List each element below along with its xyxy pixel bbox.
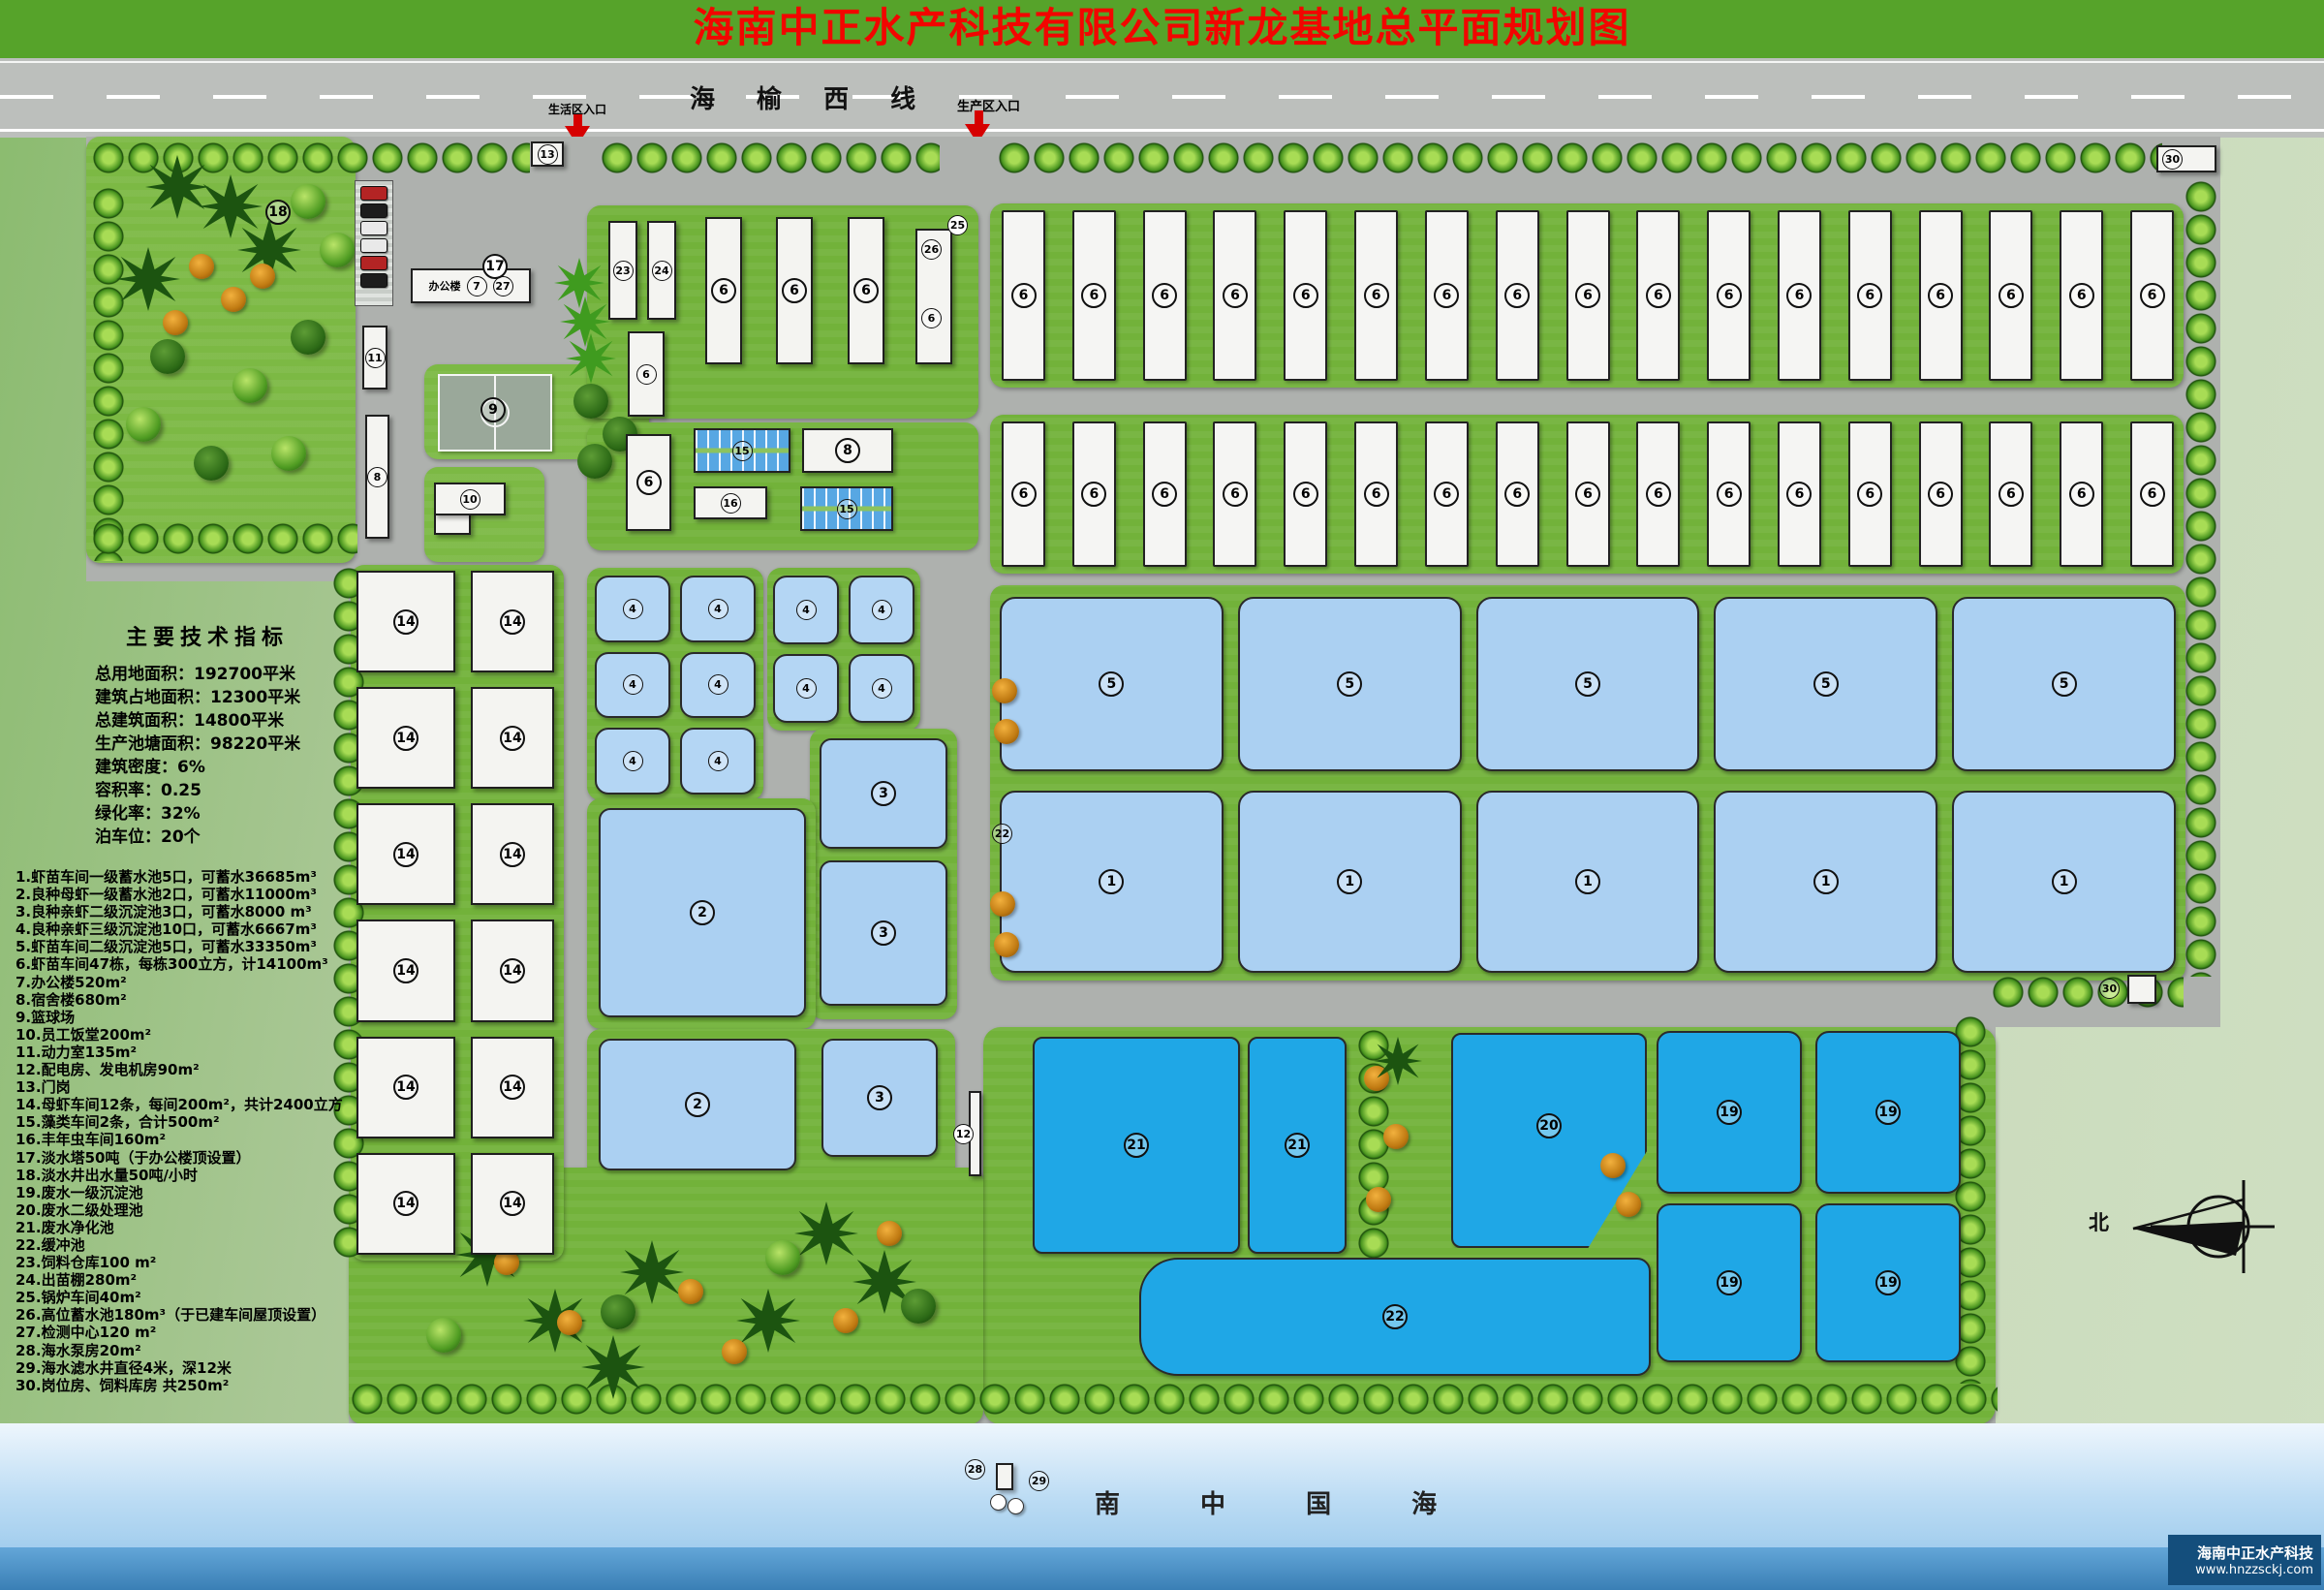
reservoir-pond-1: 1 xyxy=(1000,791,1224,973)
marker-pond19: 19 xyxy=(1875,1270,1901,1295)
unit-marker: 4 xyxy=(623,599,643,619)
road-dashed-line xyxy=(0,95,2324,99)
mu-shrimp-building: 14 xyxy=(356,1153,455,1255)
orange-shrub-icon xyxy=(992,678,1017,703)
production-entrance-arrow xyxy=(975,110,983,125)
list-item: 1.虾苗车间一级蓄水池5口，可蓄水36685m³ xyxy=(15,868,343,886)
sediment-pond-3: 3 xyxy=(820,860,947,1006)
marker-basketball-court: 9 xyxy=(480,397,506,422)
marker-barn: 6 xyxy=(636,364,657,385)
shrimp-barn: 6 xyxy=(626,434,671,531)
sediment-pond-3: 3 xyxy=(820,738,947,849)
unit-marker: 4 xyxy=(796,678,817,699)
shrimp-barn: 6 xyxy=(2130,210,2174,381)
road-edge-line2 xyxy=(0,129,2324,132)
mu-shrimp-building: 14 xyxy=(471,1037,554,1138)
marker-guard-house: 30 xyxy=(2099,979,2120,999)
canteen-building: 10 xyxy=(434,483,506,515)
hedge-top-mid xyxy=(601,139,940,179)
list-item: 总建筑面积：14800平米 xyxy=(95,709,300,733)
list-item: 23.饲料仓库100 m² xyxy=(15,1254,343,1271)
marker-barn: 6 xyxy=(921,308,942,328)
marker-feed-warehouse: 23 xyxy=(613,261,634,281)
reservoir-pond-5: 5 xyxy=(1000,597,1224,771)
shrimp-barn: 6 xyxy=(1143,421,1187,567)
company-logo-box: 海南中正水产科技 www.hnzzsckj.com xyxy=(2168,1535,2321,1585)
marker-algae-workshop: 15 xyxy=(732,441,753,461)
sediment-pond-4: 4 xyxy=(849,654,914,723)
list-item: 4.良种亲虾三级沉淀池10口，可蓄水6667m³ xyxy=(15,920,343,938)
mu-shrimp-building: 14 xyxy=(356,687,455,789)
unit-marker: 1 xyxy=(1099,869,1124,894)
reservoir-pond-1: 1 xyxy=(1952,791,2176,973)
sediment-pond-19: 19 xyxy=(1657,1203,1802,1362)
gate-house: 13 xyxy=(531,141,564,167)
production-entrance-label: 生产区入口 xyxy=(957,96,1020,114)
unit-marker: 14 xyxy=(393,958,418,983)
shrimp-barn: 6 xyxy=(628,331,665,417)
list-item: 5.虾苗车间二级沉淀池5口，可蓄水33350m³ xyxy=(15,938,343,955)
unit-marker: 6 xyxy=(1575,482,1600,507)
mu-shrimp-building: 14 xyxy=(356,920,455,1021)
algae-workshop: 15 xyxy=(800,486,893,531)
unit-marker: 5 xyxy=(1099,671,1124,697)
list-item: 12.配电房、发电机房90m² xyxy=(15,1061,343,1078)
shrimp-barn: 6 xyxy=(1354,421,1398,567)
list-item: 生产池塘面积：98220平米 xyxy=(95,733,300,756)
marker-pond3: 3 xyxy=(871,781,896,806)
marker-barn: 6 xyxy=(711,278,736,303)
unit-marker: 6 xyxy=(1786,283,1812,308)
unit-marker: 4 xyxy=(623,751,643,771)
list-item: 18.淡水井出水量50吨/小时 xyxy=(15,1167,343,1184)
tree-icon xyxy=(271,436,306,471)
plan-title: 海南中正水产科技有限公司新龙基地总平面规划图 xyxy=(0,0,2324,56)
marker-pond2: 2 xyxy=(685,1092,710,1117)
shrimp-barn: 6 xyxy=(1213,421,1256,567)
compass-north-label: 北 xyxy=(2089,1207,2109,1236)
marker-pond21: 21 xyxy=(1124,1133,1149,1158)
logo-website: www.hnzzsckj.com xyxy=(2195,1563,2313,1577)
office-building: 办公楼 7 27 xyxy=(411,268,531,303)
shrimp-barn: 6 xyxy=(1425,210,1469,381)
orange-shrub-icon xyxy=(557,1310,582,1335)
sediment-pond-4: 4 xyxy=(595,576,670,642)
reservoir-pond-5: 5 xyxy=(1714,597,1937,771)
orange-shrub-icon xyxy=(189,254,214,279)
reservoir-pond-5: 5 xyxy=(1952,597,2176,771)
marker-filter-well: 29 xyxy=(1029,1471,1049,1491)
shrimp-barn: 6 xyxy=(1213,210,1256,381)
marker-pond20: 20 xyxy=(1536,1113,1562,1138)
legend-list: 1.虾苗车间一级蓄水池5口，可蓄水36685m³2.良种母虾一级蓄水池2口，可蓄… xyxy=(15,868,343,1394)
mu-shrimp-building: 14 xyxy=(471,687,554,789)
unit-marker: 1 xyxy=(2052,869,2077,894)
list-item: 容积率：0.25 xyxy=(95,779,300,802)
guard-feed-house: 30 xyxy=(2156,145,2216,172)
unit-marker: 6 xyxy=(1504,482,1530,507)
list-item: 建筑密度：6% xyxy=(95,756,300,779)
shrimp-barn: 6 xyxy=(1848,421,1892,567)
list-item: 3.良种亲虾二级沉淀池3口，可蓄水8000 m³ xyxy=(15,903,343,920)
sediment-pond-4: 4 xyxy=(773,654,839,723)
shrimp-barn: 6 xyxy=(1354,210,1398,381)
unit-marker: 14 xyxy=(393,1075,418,1100)
orange-shrub-icon xyxy=(990,891,1015,917)
orange-shrub-icon xyxy=(1616,1192,1641,1217)
unit-marker: 4 xyxy=(708,674,728,695)
sediment-pond-19: 19 xyxy=(1815,1031,1961,1194)
sediment-pond-19: 19 xyxy=(1815,1203,1961,1362)
unit-marker: 6 xyxy=(1434,283,1459,308)
unit-marker: 1 xyxy=(1575,869,1600,894)
seedling-shed: 24 xyxy=(647,221,676,320)
compass-icon xyxy=(2122,1174,2277,1275)
list-item: 2.良种母虾一级蓄水池2口，可蓄水11000m³ xyxy=(15,886,343,903)
unit-marker: 6 xyxy=(1928,283,1953,308)
list-item: 27.检测中心120 m² xyxy=(15,1324,343,1341)
marker-barn: 6 xyxy=(782,278,807,303)
unit-marker: 6 xyxy=(2140,283,2165,308)
shrimp-barn: 6 xyxy=(1778,210,1821,381)
car-icon xyxy=(360,221,387,235)
pond4-grid-left: 444444 xyxy=(595,576,756,795)
list-item: 建筑占地面积：12300平米 xyxy=(95,686,300,709)
unit-marker: 6 xyxy=(1786,482,1812,507)
tree-icon xyxy=(232,368,267,403)
tree-icon xyxy=(126,407,161,442)
unit-marker: 6 xyxy=(1223,482,1248,507)
marker-algae-workshop: 15 xyxy=(837,499,857,519)
unit-marker: 6 xyxy=(1504,283,1530,308)
shrimp-barn: 6 xyxy=(1848,210,1892,381)
orange-shrub-icon xyxy=(678,1279,703,1304)
sea-pump-house xyxy=(996,1463,1013,1490)
list-item: 总用地面积：192700平米 xyxy=(95,663,300,686)
marker-generator-room: 12 xyxy=(953,1124,974,1144)
buffer-pond-22: 22 xyxy=(1139,1258,1651,1376)
unit-marker: 6 xyxy=(1364,283,1389,308)
marker-gate-house: 13 xyxy=(538,144,558,165)
list-item: 30.岗位房、饲料库房 共250m² xyxy=(15,1377,343,1394)
unit-marker: 6 xyxy=(1999,283,2024,308)
list-item: 泊车位：20个 xyxy=(95,826,300,849)
list-item: 14.母虾车间12条，每间200m²，共计2400立方 xyxy=(15,1096,343,1113)
shrimp-barn: 6 xyxy=(1143,210,1187,381)
unit-marker: 14 xyxy=(500,1191,525,1216)
shrimp-barn: 6 xyxy=(1707,421,1751,567)
list-item: 16.丰年虫车间160m² xyxy=(15,1131,343,1148)
unit-marker: 14 xyxy=(500,842,525,867)
shrimp-barn: 6 xyxy=(1636,210,1680,381)
sediment-pond-4: 4 xyxy=(595,728,670,795)
unit-marker: 4 xyxy=(796,600,817,620)
sediment-pond-4: 4 xyxy=(680,652,756,719)
list-item: 15.藻类车间2条，合计500m² xyxy=(15,1113,343,1131)
power-room: 11 xyxy=(362,326,387,390)
reservoir-pond-5: 5 xyxy=(1238,597,1462,771)
reservoir-pond-1: 1 xyxy=(1714,791,1937,973)
list-item: 22.缓冲池 xyxy=(15,1236,343,1254)
unit-marker: 6 xyxy=(1434,482,1459,507)
list-item: 绿化率：32% xyxy=(95,802,300,826)
unit-marker: 6 xyxy=(2069,283,2094,308)
tree-icon xyxy=(577,444,612,479)
shrimp-barn: 6 xyxy=(1284,421,1327,567)
tree-icon xyxy=(601,1294,635,1329)
feed-warehouse: 23 xyxy=(608,221,637,320)
purification-pond-21: 21 xyxy=(1033,1037,1240,1254)
unit-marker: 6 xyxy=(1081,482,1106,507)
car-icon xyxy=(360,203,387,218)
list-item: 28.海水泵房20m² xyxy=(15,1342,343,1359)
hedge-park-bottom xyxy=(92,519,357,560)
mu-shrimp-building: 14 xyxy=(471,920,554,1021)
office-label: 办公楼 xyxy=(429,278,461,294)
marker-water-tower: 17 xyxy=(482,254,508,279)
orange-shrub-icon xyxy=(877,1221,902,1246)
storage-pond-2: 2 xyxy=(599,1039,796,1170)
shrimp-barn: 6 xyxy=(1566,210,1610,381)
shrimp-barn: 6 xyxy=(2060,210,2103,381)
unit-marker: 6 xyxy=(2140,482,2165,507)
sediment-pond-4: 4 xyxy=(773,576,839,644)
marker-canteen: 10 xyxy=(460,489,480,510)
shrimp-barn: 6 xyxy=(1919,210,1963,381)
list-item: 25.锅炉车间40m² xyxy=(15,1289,343,1306)
tree-icon xyxy=(901,1289,936,1324)
sediment-pond-4: 4 xyxy=(595,652,670,719)
shrimp-barn: 6 xyxy=(1989,210,2032,381)
car-icon xyxy=(360,256,387,270)
list-item: 8.宿舍楼680m² xyxy=(15,991,343,1009)
unit-marker: 5 xyxy=(1575,671,1600,697)
filter-well-icon xyxy=(990,1494,1007,1511)
unit-marker: 6 xyxy=(1364,482,1389,507)
list-item: 6.虾苗车间47栋，每栋300立方，计14100m³ xyxy=(15,955,343,973)
shrimp-barn: 6 xyxy=(848,217,884,364)
list-item: 11.动力室135m² xyxy=(15,1044,343,1061)
reservoir-pond-1: 1 xyxy=(1476,791,1700,973)
marker-barn: 6 xyxy=(636,470,662,495)
list-item: 21.废水净化池 xyxy=(15,1219,343,1236)
shrimp-barn: 6 xyxy=(1072,210,1116,381)
sediment-pond-4: 4 xyxy=(680,576,756,642)
unit-marker: 1 xyxy=(1813,869,1839,894)
unit-marker: 6 xyxy=(1575,283,1600,308)
unit-marker: 6 xyxy=(1152,482,1177,507)
marker-pond21: 21 xyxy=(1285,1133,1310,1158)
orange-shrub-icon xyxy=(250,264,275,289)
unit-marker: 4 xyxy=(623,674,643,695)
marker-pond19: 19 xyxy=(1717,1270,1742,1295)
list-item: 13.门岗 xyxy=(15,1078,343,1096)
shrimp-barn: 6 xyxy=(1002,210,1045,381)
tree-icon xyxy=(194,446,229,481)
shrimp-barn: 6 xyxy=(1636,421,1680,567)
list-item: 26.高位蓄水池180m³（于已建车间屋顶设置） xyxy=(15,1306,343,1324)
unit-marker: 6 xyxy=(1717,482,1742,507)
shrimp-barn: 6 xyxy=(1919,421,1963,567)
shrimp-barn: 6 xyxy=(2130,421,2174,567)
pond-row-5: 55555 xyxy=(1000,597,2176,771)
sediment-pond-4: 4 xyxy=(680,728,756,795)
unit-marker: 6 xyxy=(1081,283,1106,308)
marker-dormitory: 8 xyxy=(835,438,860,463)
sediment-pond-4: 4 xyxy=(849,576,914,644)
unit-marker: 1 xyxy=(1337,869,1362,894)
car-icon xyxy=(360,273,387,288)
site-plan-canvas: 海南中正水产科技有限公司新龙基地总平面规划图 海 榆 西 线 生活区入口 生产区… xyxy=(0,0,2324,1590)
guard-feed-house xyxy=(2127,975,2156,1004)
marker-buffer-pond: 22 xyxy=(992,824,1012,844)
tree-icon xyxy=(320,233,355,267)
orange-shrub-icon xyxy=(722,1339,747,1364)
mu-shrimp-building: 14 xyxy=(356,571,455,672)
sediment-pond-3: 3 xyxy=(821,1039,938,1157)
unit-marker: 6 xyxy=(1999,482,2024,507)
list-item: 19.废水一级沉淀池 xyxy=(15,1184,343,1201)
highway-name: 海 榆 西 线 xyxy=(690,79,921,115)
marker-guard-house: 30 xyxy=(2162,149,2183,170)
marker-brine-worm: 16 xyxy=(721,493,741,514)
unit-marker: 6 xyxy=(1152,283,1177,308)
marker-dormitory: 8 xyxy=(367,467,387,487)
mu-shrimp-grid: 141414141414141414141414 xyxy=(356,571,554,1255)
list-item: 10.员工饭堂200m² xyxy=(15,1026,343,1044)
shrimp-barn: 6 xyxy=(1002,421,1045,567)
marker-barn: 6 xyxy=(853,278,879,303)
unit-marker: 5 xyxy=(1337,671,1362,697)
unit-marker: 6 xyxy=(2069,482,2094,507)
unit-marker: 14 xyxy=(500,726,525,751)
marker-boiler-room: 25 xyxy=(947,215,968,235)
unit-marker: 6 xyxy=(1223,283,1248,308)
unit-marker: 4 xyxy=(708,599,728,619)
shrimp-barn: 6 xyxy=(1496,210,1539,381)
unit-marker: 6 xyxy=(1293,482,1318,507)
purification-pond-21: 21 xyxy=(1248,1037,1347,1254)
unit-marker: 4 xyxy=(872,678,892,699)
hedge-left-col xyxy=(89,187,128,561)
tree-icon xyxy=(426,1318,461,1353)
unit-marker: 6 xyxy=(1646,482,1671,507)
shrimp-barn: 6 xyxy=(1284,210,1327,381)
marker-sea-pump: 28 xyxy=(965,1459,985,1480)
pond4-grid-right: 4444 xyxy=(773,576,914,723)
shrimp-barn: 6 xyxy=(1072,421,1116,567)
reservoir-pond-5: 5 xyxy=(1476,597,1700,771)
pond-row-1: 11111 xyxy=(1000,791,2176,973)
unit-marker: 6 xyxy=(1857,283,1882,308)
barn-row-bottom: 66666666666666666 xyxy=(996,419,2180,570)
algae-workshop: 15 xyxy=(694,428,790,473)
sea-label: 南 中 国 海 xyxy=(1095,1484,1448,1520)
storage-pond-2: 2 xyxy=(599,808,806,1017)
marker-pond19: 19 xyxy=(1717,1100,1742,1125)
orange-shrub-icon xyxy=(221,287,246,312)
hedge-right-col xyxy=(2182,180,2220,977)
mu-shrimp-building: 14 xyxy=(471,1153,554,1255)
unit-marker: 14 xyxy=(500,609,525,635)
unit-marker: 6 xyxy=(1717,283,1742,308)
dormitory-building: 8 xyxy=(365,415,389,539)
unit-marker: 5 xyxy=(1813,671,1839,697)
car-icon xyxy=(360,186,387,201)
unit-marker: 6 xyxy=(1011,283,1037,308)
car-icon xyxy=(360,238,387,253)
hedge-top-right xyxy=(998,139,2162,179)
sediment-pond-19: 19 xyxy=(1657,1031,1802,1194)
marker-roof-tank: 26 xyxy=(921,239,942,260)
hedge-sea-edge xyxy=(351,1380,1998,1424)
unit-marker: 14 xyxy=(500,1075,525,1100)
shrimp-barn: 6 xyxy=(776,217,813,364)
marker-power-room: 11 xyxy=(365,348,386,368)
reservoir-pond-1: 1 xyxy=(1238,791,1462,973)
unit-marker: 14 xyxy=(393,842,418,867)
list-item: 24.出苗棚280m² xyxy=(15,1271,343,1289)
unit-marker: 14 xyxy=(393,726,418,751)
tree-icon xyxy=(291,184,325,219)
orange-shrub-icon xyxy=(1383,1124,1409,1149)
marker-pond3: 3 xyxy=(867,1085,892,1110)
shrimp-barn: 6 xyxy=(705,217,742,364)
orange-shrub-icon xyxy=(833,1308,858,1333)
orange-shrub-icon xyxy=(994,719,1019,744)
list-item: 29.海水滤水井直径4米，深12米 xyxy=(15,1359,343,1377)
sea-deep-band xyxy=(0,1547,2324,1590)
mu-shrimp-building: 14 xyxy=(471,571,554,672)
mu-shrimp-building: 14 xyxy=(356,803,455,905)
tree-icon xyxy=(150,339,185,374)
unit-marker: 6 xyxy=(1293,283,1318,308)
title-banner: 海南中正水产科技有限公司新龙基地总平面规划图 xyxy=(0,0,2324,58)
marker-pond2: 2 xyxy=(690,900,715,925)
tree-icon xyxy=(765,1240,800,1275)
unit-marker: 6 xyxy=(1857,482,1882,507)
mu-shrimp-building: 14 xyxy=(471,803,554,905)
logo-company-name: 海南中正水产科技 xyxy=(2197,1543,2313,1563)
shrimp-barn: 6 xyxy=(1989,421,2032,567)
dormitory-building-2: 8 xyxy=(802,428,893,473)
orange-shrub-icon xyxy=(1366,1187,1391,1212)
list-item: 20.废水二级处理池 xyxy=(15,1201,343,1219)
marker-pond3: 3 xyxy=(871,920,896,946)
unit-marker: 6 xyxy=(1928,482,1953,507)
shrimp-barn: 6 xyxy=(1778,421,1821,567)
filter-well-icon xyxy=(1007,1498,1024,1514)
orange-shrub-icon xyxy=(1600,1153,1626,1178)
list-item: 7.办公楼520m² xyxy=(15,974,343,991)
list-item: 9.篮球场 xyxy=(15,1009,343,1026)
shrimp-barn: 6 xyxy=(2060,421,2103,567)
unit-marker: 4 xyxy=(708,751,728,771)
unit-marker: 5 xyxy=(2052,671,2077,697)
unit-marker: 14 xyxy=(393,609,418,635)
tree-icon xyxy=(573,384,608,419)
barn-row-top: 66666666666666666 xyxy=(996,207,2180,384)
mu-shrimp-building: 14 xyxy=(356,1037,455,1138)
tech-lines: 总用地面积：192700平米建筑占地面积：12300平米总建筑面积：14800平… xyxy=(95,663,300,849)
unit-marker: 6 xyxy=(1646,283,1671,308)
road-edge-line xyxy=(0,61,2324,63)
marker-seedling-shed: 24 xyxy=(652,261,672,281)
unit-marker: 6 xyxy=(1011,482,1037,507)
marker-office: 7 xyxy=(467,276,487,296)
brine-worm-workshop: 16 xyxy=(694,486,767,519)
marker-pond22: 22 xyxy=(1382,1304,1408,1329)
